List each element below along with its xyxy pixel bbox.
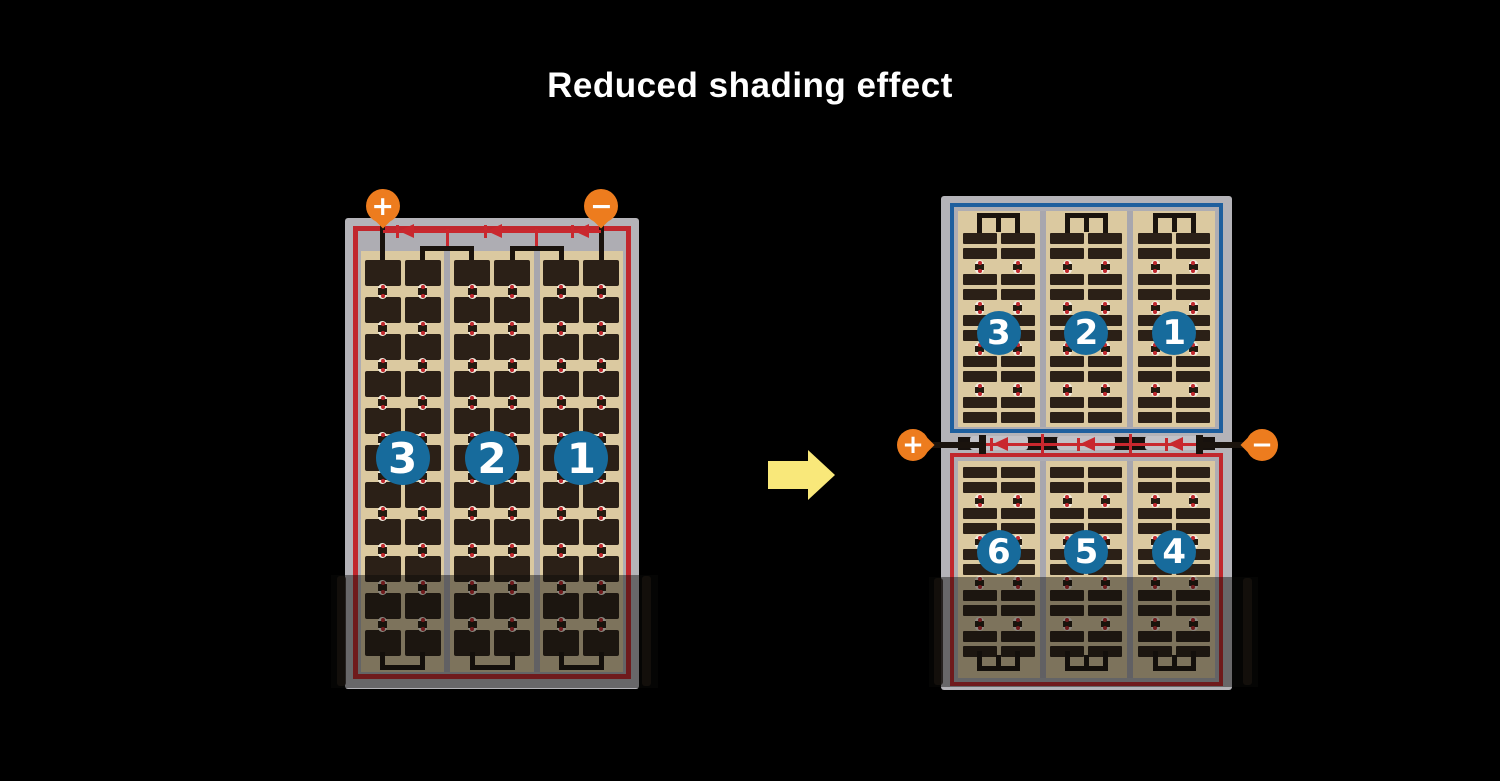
cell-connector bbox=[975, 301, 984, 315]
solar-cell bbox=[543, 297, 579, 323]
cell-connector bbox=[508, 543, 517, 558]
half-cut-cell bbox=[1138, 248, 1172, 259]
cell-connector bbox=[1063, 383, 1072, 397]
solar-cell bbox=[365, 260, 401, 286]
half-cut-cell bbox=[1176, 356, 1210, 367]
half-cut-cell bbox=[963, 467, 997, 478]
solar-cell bbox=[543, 482, 579, 508]
half-cut-cell bbox=[1001, 233, 1035, 244]
arrow-body bbox=[768, 461, 808, 489]
solar-cell bbox=[365, 371, 401, 397]
half-cut-cell bbox=[1138, 233, 1172, 244]
solar-cell bbox=[583, 519, 619, 545]
cell-connector bbox=[975, 383, 984, 397]
half-cut-cell bbox=[1088, 274, 1122, 285]
shading-edge bbox=[337, 576, 346, 686]
half-cut-cell bbox=[1050, 371, 1084, 382]
solar-cell bbox=[365, 482, 401, 508]
cell-connector bbox=[597, 543, 606, 558]
half-cut-cell bbox=[963, 289, 997, 300]
cell-connector bbox=[418, 506, 427, 521]
half-cut-cell bbox=[1050, 508, 1084, 519]
half-cut-cell bbox=[1050, 397, 1084, 408]
half-cut-cell bbox=[1050, 289, 1084, 300]
cell-connector bbox=[378, 284, 387, 299]
solar-cell bbox=[543, 408, 579, 434]
half-cut-cell bbox=[963, 248, 997, 259]
solar-cell bbox=[543, 334, 579, 360]
interconnect-stem bbox=[1084, 218, 1089, 232]
cell-connector bbox=[1151, 260, 1160, 274]
cell-connector bbox=[1063, 494, 1072, 508]
terminal-positive: + bbox=[366, 189, 400, 223]
solar-cell bbox=[583, 334, 619, 360]
half-cut-cell bbox=[1176, 371, 1210, 382]
cell-connector bbox=[975, 260, 984, 274]
half-cut-cell bbox=[1001, 274, 1035, 285]
half-cut-cell bbox=[1088, 397, 1122, 408]
cell-connector bbox=[468, 358, 477, 373]
cell-connector bbox=[378, 358, 387, 373]
solar-cell bbox=[365, 334, 401, 360]
cell-connector bbox=[597, 321, 606, 336]
half-cut-cell bbox=[1050, 356, 1084, 367]
interconnect-wire bbox=[420, 246, 474, 261]
cell-connector bbox=[378, 321, 387, 336]
half-cut-cell bbox=[1176, 248, 1210, 259]
half-cut-cell bbox=[1138, 274, 1172, 285]
solar-cell bbox=[454, 519, 490, 545]
solar-cell bbox=[405, 334, 441, 360]
solar-cell bbox=[454, 297, 490, 323]
half-cut-cell bbox=[1001, 412, 1035, 423]
shading-edge bbox=[642, 576, 651, 686]
bypass-diode-icon bbox=[574, 224, 589, 238]
half-cut-cell bbox=[1088, 482, 1122, 493]
half-cut-cell bbox=[1138, 508, 1172, 519]
half-cut-cell bbox=[1088, 233, 1122, 244]
solar-cell bbox=[405, 408, 441, 434]
cell-connector bbox=[1189, 260, 1198, 274]
cell-connector bbox=[508, 321, 517, 336]
string-number-badge: 3 bbox=[977, 311, 1021, 355]
solar-cell bbox=[405, 260, 441, 286]
string-divider bbox=[1127, 211, 1133, 427]
half-cut-cell bbox=[1088, 508, 1122, 519]
half-cut-cell bbox=[1001, 356, 1035, 367]
cell-connector bbox=[378, 543, 387, 558]
cell-connector bbox=[597, 395, 606, 410]
cell-connector bbox=[1063, 260, 1072, 274]
cell-connector bbox=[1063, 301, 1072, 315]
interconnect-stem bbox=[996, 218, 1001, 232]
cell-connector bbox=[1013, 383, 1022, 397]
cell-connector bbox=[418, 284, 427, 299]
half-cut-cell bbox=[1050, 274, 1084, 285]
solar-cell bbox=[454, 260, 490, 286]
shading-overlay bbox=[929, 577, 1258, 687]
half-cut-cell bbox=[1001, 248, 1035, 259]
half-cut-cell bbox=[1001, 482, 1035, 493]
half-cut-cell bbox=[1138, 397, 1172, 408]
cell-connector bbox=[468, 395, 477, 410]
cell-connector bbox=[508, 284, 517, 299]
half-cut-cell bbox=[1176, 289, 1210, 300]
solar-cell bbox=[405, 371, 441, 397]
half-cut-cell bbox=[1001, 467, 1035, 478]
cell-connector bbox=[1101, 260, 1110, 274]
solar-cell bbox=[583, 482, 619, 508]
string-number-badge: 3 bbox=[376, 431, 430, 485]
solar-cell bbox=[543, 519, 579, 545]
cell-connector bbox=[1101, 494, 1110, 508]
cell-connector bbox=[1151, 301, 1160, 315]
half-cut-cell bbox=[1088, 356, 1122, 367]
half-cut-cell bbox=[963, 371, 997, 382]
string-number-badge: 6 bbox=[977, 530, 1021, 574]
shading-overlay bbox=[331, 575, 658, 688]
half-cut-cell bbox=[1050, 482, 1084, 493]
half-cut-cell bbox=[1138, 356, 1172, 367]
cell-connector bbox=[597, 284, 606, 299]
solar-cell bbox=[454, 371, 490, 397]
arrow-head bbox=[808, 450, 835, 500]
cell-connector bbox=[508, 506, 517, 521]
bypass-diode-icon bbox=[1080, 437, 1095, 451]
half-cut-cell bbox=[963, 397, 997, 408]
half-cut-cell bbox=[1138, 289, 1172, 300]
solar-cell bbox=[583, 371, 619, 397]
diode-wire-stub bbox=[1041, 434, 1044, 453]
cell-connector bbox=[508, 358, 517, 373]
shading-edge bbox=[934, 578, 943, 685]
half-cut-cell bbox=[963, 356, 997, 367]
diode-wire-stub bbox=[1129, 434, 1132, 453]
half-cut-cell bbox=[1176, 397, 1210, 408]
solar-cell bbox=[494, 482, 530, 508]
half-cut-cell bbox=[1001, 371, 1035, 382]
cell-connector bbox=[1101, 383, 1110, 397]
cell-connector bbox=[557, 358, 566, 373]
half-cut-cell bbox=[963, 508, 997, 519]
cell-connector bbox=[557, 506, 566, 521]
solar-cell bbox=[365, 408, 401, 434]
solar-cell bbox=[405, 482, 441, 508]
cell-connector bbox=[1189, 301, 1198, 315]
solar-cell bbox=[494, 371, 530, 397]
diagram-stage: Reduced shading effect 321+−321654+− bbox=[0, 0, 1500, 781]
cell-connector bbox=[557, 395, 566, 410]
string-number-badge: 1 bbox=[1152, 311, 1196, 355]
cell-connector bbox=[418, 321, 427, 336]
cell-connector bbox=[508, 395, 517, 410]
cell-connector bbox=[1189, 494, 1198, 508]
string-divider bbox=[1040, 211, 1046, 427]
half-cut-cell bbox=[1088, 371, 1122, 382]
solar-cell bbox=[583, 408, 619, 434]
half-cut-cell bbox=[1176, 508, 1210, 519]
cell-connector bbox=[557, 321, 566, 336]
half-cut-cell bbox=[1138, 412, 1172, 423]
interconnect-stem bbox=[1172, 218, 1177, 232]
half-cut-cell bbox=[1138, 467, 1172, 478]
solar-cell bbox=[405, 519, 441, 545]
solar-cell bbox=[365, 519, 401, 545]
cell-connector bbox=[1101, 301, 1110, 315]
half-cut-cell bbox=[1088, 412, 1122, 423]
solar-cell bbox=[543, 371, 579, 397]
cell-connector bbox=[468, 284, 477, 299]
cell-connector bbox=[557, 543, 566, 558]
cell-connector bbox=[557, 284, 566, 299]
shading-edge bbox=[1243, 578, 1252, 685]
half-cut-cell bbox=[963, 274, 997, 285]
half-cut-cell bbox=[1050, 248, 1084, 259]
half-cut-cell bbox=[1176, 233, 1210, 244]
terminal-wire bbox=[929, 442, 981, 448]
solar-cell bbox=[494, 260, 530, 286]
cell-connector bbox=[378, 506, 387, 521]
half-cut-cell bbox=[1176, 274, 1210, 285]
cell-connector bbox=[418, 358, 427, 373]
terminal-positive: + bbox=[897, 429, 929, 461]
solar-cell bbox=[365, 297, 401, 323]
cell-connector bbox=[1013, 260, 1022, 274]
half-cut-cell bbox=[1138, 482, 1172, 493]
half-cut-cell bbox=[1050, 412, 1084, 423]
cell-connector bbox=[468, 321, 477, 336]
cell-connector bbox=[1151, 494, 1160, 508]
cell-connector bbox=[1189, 383, 1198, 397]
cell-connector bbox=[1151, 383, 1160, 397]
solar-cell bbox=[494, 297, 530, 323]
solar-cell bbox=[583, 297, 619, 323]
half-cut-cell bbox=[1050, 467, 1084, 478]
half-cut-cell bbox=[1001, 289, 1035, 300]
half-cut-cell bbox=[1176, 467, 1210, 478]
cell-connector bbox=[378, 395, 387, 410]
solar-cell bbox=[494, 334, 530, 360]
half-cut-cell bbox=[1001, 397, 1035, 408]
half-cut-cell bbox=[1176, 482, 1210, 493]
half-cut-cell bbox=[1088, 289, 1122, 300]
cell-connector bbox=[468, 543, 477, 558]
cell-connector bbox=[1013, 494, 1022, 508]
cell-connector bbox=[975, 494, 984, 508]
solar-cell bbox=[454, 408, 490, 434]
shading-diagram: 321+−321654+− bbox=[0, 0, 1500, 781]
string-number-badge: 1 bbox=[554, 431, 608, 485]
cell-connector bbox=[597, 358, 606, 373]
terminal-negative: − bbox=[1246, 429, 1278, 461]
half-cut-cell bbox=[1088, 467, 1122, 478]
solar-cell bbox=[494, 519, 530, 545]
cell-connector bbox=[1013, 301, 1022, 315]
half-cut-cell bbox=[1001, 508, 1035, 519]
cell-connector bbox=[418, 395, 427, 410]
bypass-diode-icon bbox=[399, 224, 414, 238]
half-cut-cell bbox=[1088, 248, 1122, 259]
bypass-diode-icon bbox=[993, 437, 1008, 451]
cell-connector bbox=[468, 506, 477, 521]
half-cut-cell bbox=[1050, 233, 1084, 244]
half-cut-cell bbox=[1176, 412, 1210, 423]
solar-cell bbox=[405, 297, 441, 323]
half-cut-cell bbox=[1138, 371, 1172, 382]
bypass-diode-icon bbox=[487, 224, 502, 238]
cell-connector bbox=[418, 543, 427, 558]
solar-cell bbox=[583, 260, 619, 286]
half-cut-cell bbox=[963, 412, 997, 423]
solar-cell bbox=[454, 482, 490, 508]
half-cut-cell bbox=[963, 482, 997, 493]
interconnect-wire bbox=[510, 246, 564, 261]
solar-cell bbox=[454, 334, 490, 360]
solar-cell bbox=[494, 408, 530, 434]
string-number-badge: 4 bbox=[1152, 530, 1196, 574]
string-number-badge: 2 bbox=[465, 431, 519, 485]
half-cut-cell bbox=[963, 233, 997, 244]
bypass-diode-icon bbox=[1168, 437, 1183, 451]
cell-connector bbox=[597, 506, 606, 521]
solar-cell bbox=[543, 260, 579, 286]
